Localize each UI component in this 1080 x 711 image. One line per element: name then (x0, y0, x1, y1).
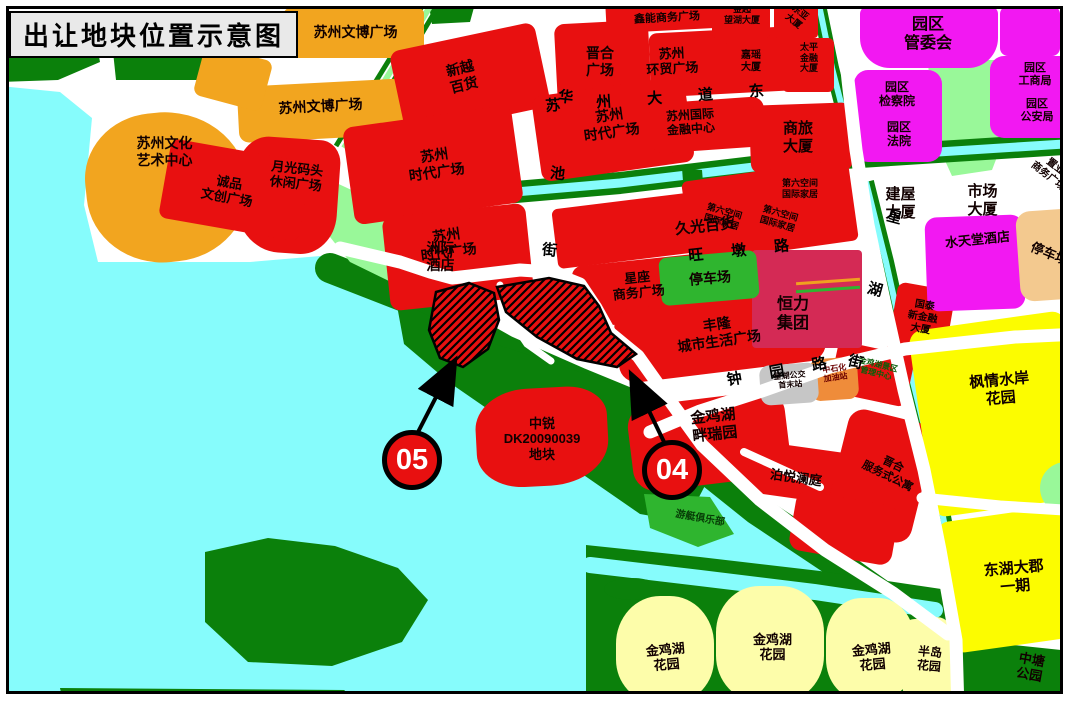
block-times-square-c (381, 203, 534, 312)
block-shuitiantang (924, 214, 1025, 311)
block-jjh-garden-2 (716, 586, 824, 702)
block-donghu (937, 504, 1080, 653)
margin-bottom (0, 692, 1080, 711)
block-magenta-ne (1000, 6, 1060, 56)
block-jjh-garden-1 (616, 596, 714, 702)
parcel-badge-05: 05 (382, 430, 442, 490)
margin-top (0, 0, 1080, 7)
margin-right (1060, 0, 1080, 711)
block-jiayao-tower (724, 42, 776, 86)
block-parking-green (658, 250, 760, 306)
block-taiping-finance (782, 38, 834, 92)
margin-left (0, 0, 7, 711)
map-canvas: 苏州文博广场 苏州文博广场 苏州文化 艺术中心 月光码头 休闲广场 诚品 文创广… (0, 0, 1080, 711)
parcel-badge-04: 04 (642, 440, 702, 500)
block-bus-station (759, 362, 820, 406)
block-jiancha-fayuan (854, 70, 942, 162)
map-title: 出让地块位置示意图 (9, 11, 298, 58)
block-hengli (752, 250, 862, 348)
block-guanweihui (860, 6, 998, 68)
